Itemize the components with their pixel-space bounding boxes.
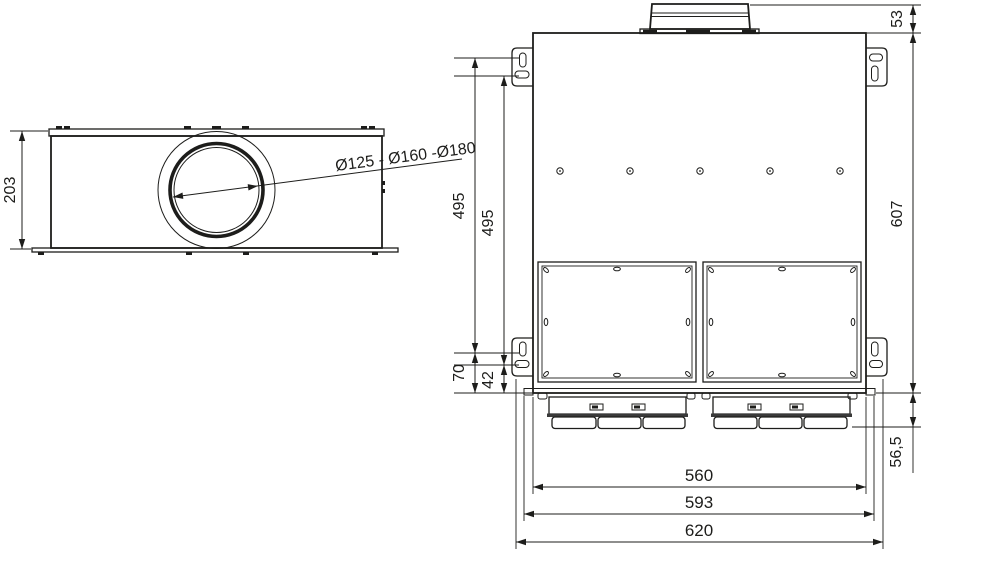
- dim-label-203: 203: [2, 177, 19, 204]
- dim-label-42: 42: [480, 371, 497, 389]
- dim-slot-bottom-42: 42: [480, 365, 504, 393]
- dim-label-495-outer: 495: [451, 193, 468, 220]
- dim-label-56-5: 56,5: [888, 436, 905, 467]
- side-view-lid: [49, 129, 384, 136]
- dim-slot-pitch-inner-495: 495: [454, 76, 519, 365]
- mounting-bracket-bottom-left: [512, 338, 533, 376]
- dim-body-width-560: 560: [533, 397, 866, 494]
- dim-height-607: 607: [876, 33, 921, 393]
- dim-spigot-53: 53: [750, 5, 921, 33]
- side-view: 203 Ø125 - Ø160 -Ø180: [2, 126, 477, 255]
- dim-label-593: 593: [685, 493, 713, 512]
- top-spigot: [640, 4, 759, 34]
- bottom-flange-right: [866, 389, 875, 396]
- drawing-page: 203 Ø125 - Ø160 -Ø180: [0, 0, 1000, 572]
- dim-label-53: 53: [889, 10, 906, 28]
- dim-diameter-leader: Ø125 - Ø160 -Ø180: [173, 140, 477, 201]
- dim-label-495-inner: 495: [480, 210, 497, 237]
- dim-slot-pitch-outer-495: 495: [451, 58, 519, 353]
- dim-label-560: 560: [685, 466, 713, 485]
- side-view-body: [51, 136, 382, 248]
- front-view: 53 607 56,5 495 495 70: [451, 4, 921, 549]
- latch-slots: [590, 404, 645, 410]
- panel-screws: [708, 267, 857, 378]
- dim-overall-width-620: 620: [516, 379, 883, 549]
- duct-collar: [158, 132, 275, 249]
- panel-screws: [543, 267, 692, 378]
- bottom-flange-left: [524, 389, 533, 396]
- connector-compartments: [552, 417, 685, 429]
- latch-slots: [748, 404, 803, 410]
- mounting-bracket-top-left: [512, 48, 533, 86]
- connector-block-right: [711, 397, 852, 429]
- connector-block-left: [547, 397, 688, 429]
- technical-drawing-canvas: 203 Ø125 - Ø160 -Ø180: [0, 0, 1000, 572]
- mounting-bracket-top-right: [866, 48, 887, 86]
- dim-connector-56-5: 56,5: [852, 393, 921, 473]
- dim-label-620: 620: [685, 521, 713, 540]
- dim-height-203: 203: [2, 131, 48, 249]
- dim-label-70: 70: [451, 364, 468, 382]
- access-panel-left: [538, 262, 696, 382]
- screw-holes-row: [557, 168, 843, 174]
- housing-outline: [533, 33, 866, 393]
- access-panel-right: [703, 262, 861, 382]
- mounting-bracket-bottom-right: [866, 338, 887, 376]
- connector-compartments: [714, 417, 847, 429]
- dim-label-607: 607: [889, 201, 906, 228]
- dim-label-diameter: Ø125 - Ø160 -Ø180: [334, 140, 477, 175]
